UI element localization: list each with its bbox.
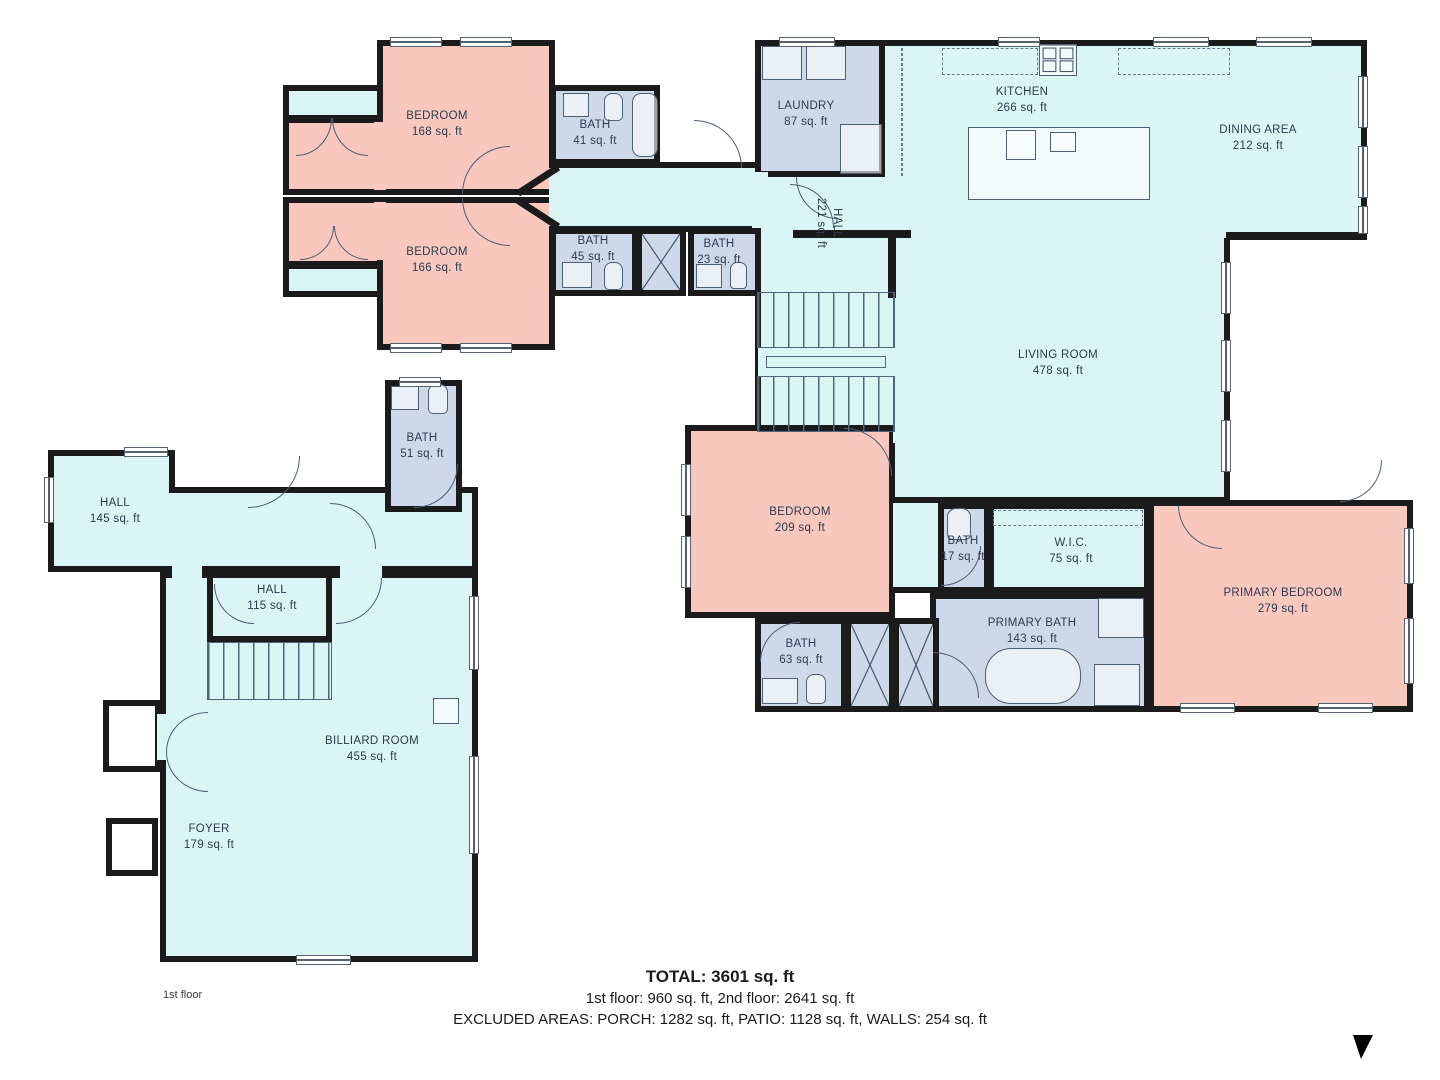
wall-opening (374, 202, 386, 260)
sink (1094, 664, 1140, 706)
window (399, 377, 441, 387)
window (1221, 340, 1231, 392)
label-wic: W.I.C.75 sq. ft (1049, 535, 1093, 567)
window (1358, 206, 1368, 234)
wall (1226, 232, 1367, 240)
window (469, 596, 479, 670)
wall-opening (340, 564, 382, 578)
window (469, 756, 479, 854)
window (1404, 618, 1414, 684)
label-hall-145: HALL145 sq. ft (90, 495, 140, 527)
window (460, 37, 512, 47)
sink (1098, 598, 1144, 638)
window (1153, 37, 1209, 47)
bathtub (632, 93, 658, 157)
room-bedroom-166-bay (283, 263, 383, 297)
label-bath-51: BATH51 sq. ft (400, 430, 444, 462)
summary-floors: 1st floor: 960 sq. ft, 2nd floor: 2641 s… (0, 988, 1440, 1009)
staircase-first-floor (207, 642, 332, 700)
island-cooktop (1050, 132, 1076, 152)
staircase-landing-rail (766, 356, 886, 368)
label-laundry: LAUNDRY87 sq. ft (778, 98, 835, 130)
label-hall-221: HALL221 sq. ft (813, 198, 845, 248)
label-bath-63: BATH63 sq. ft (779, 636, 823, 668)
corner-marker-triangle-icon (1353, 1035, 1373, 1059)
toilet (604, 262, 623, 290)
summary-total: TOTAL: 3601 sq. ft (0, 966, 1440, 988)
window (1256, 37, 1312, 47)
closet-a (845, 618, 895, 712)
label-primary-bath: PRIMARY BATH143 sq. ft (988, 615, 1077, 647)
window (998, 37, 1040, 47)
toilet (428, 384, 448, 414)
dryer (806, 46, 846, 80)
wall (888, 238, 896, 298)
closet-shelving (993, 510, 1143, 526)
wall-opening (374, 122, 386, 190)
window (1221, 420, 1231, 472)
primary-bathtub (985, 648, 1081, 704)
window (390, 37, 442, 47)
window (1358, 146, 1368, 198)
window (124, 447, 168, 457)
sink (563, 93, 589, 117)
window (460, 343, 512, 353)
wall-opening (893, 431, 1223, 443)
window (681, 536, 691, 588)
summary-excluded: EXCLUDED AREAS: PORCH: 1282 sq. ft, PATI… (0, 1009, 1440, 1030)
counter-edge (901, 48, 903, 176)
wall (793, 230, 911, 238)
label-bath-45: BATH45 sq. ft (571, 233, 615, 265)
label-bedroom-168: BEDROOM168 sq. ft (406, 108, 468, 140)
label-living-room: LIVING ROOM478 sq. ft (1018, 347, 1098, 379)
floor-plan-canvas: BEDROOM168 sq. ft BATH41 sq. ft BEDROOM1… (0, 0, 1440, 1080)
wall-opening (172, 566, 202, 580)
label-bedroom-209: BEDROOM209 sq. ft (769, 504, 831, 536)
window (296, 955, 351, 965)
laundry-sink (840, 124, 882, 174)
room-living-lower (888, 437, 1230, 503)
upper-cabinets (942, 48, 1038, 75)
sink (391, 386, 419, 410)
area-summary: TOTAL: 3601 sq. ft 1st floor: 960 sq. ft… (0, 966, 1440, 1030)
label-bath-23: BATH23 sq. ft (697, 236, 741, 268)
window (1180, 703, 1235, 713)
window (44, 477, 54, 523)
wall-opening (752, 172, 768, 228)
upper-cabinets (1118, 48, 1230, 75)
label-bath-17: BATH17 sq. ft (941, 533, 985, 565)
island-sink (1006, 130, 1036, 160)
room-vestibule (893, 503, 942, 593)
window (1404, 528, 1414, 584)
window (779, 37, 835, 47)
washer (762, 46, 802, 80)
window (1221, 262, 1231, 314)
door-arc (694, 120, 742, 168)
window (681, 464, 691, 516)
shower-stall (636, 228, 686, 296)
door-arc (1340, 460, 1382, 502)
label-billiard-room: BILLIARD ROOM455 sq. ft (325, 733, 419, 765)
toilet (806, 674, 826, 704)
wall-opening (167, 493, 181, 566)
label-hall-115: HALL115 sq. ft (247, 582, 296, 614)
window (1318, 703, 1373, 713)
room-bedroom-168-bay (283, 85, 383, 121)
window (1358, 76, 1368, 128)
porch-alcove-door (103, 700, 161, 772)
wall-nook (433, 698, 459, 724)
porch-alcove-window (106, 818, 158, 876)
window (390, 343, 442, 353)
sink (562, 262, 592, 288)
staircase-upper-flight (757, 292, 895, 348)
label-bath-41: BATH41 sq. ft (573, 117, 617, 149)
label-foyer: FOYER179 sq. ft (184, 821, 234, 853)
stove-icon (1039, 44, 1077, 76)
sink (762, 678, 798, 704)
label-kitchen: KITCHEN266 sq. ft (996, 84, 1049, 116)
staircase-lower-flight (757, 376, 895, 432)
label-dining-area: DINING AREA212 sq. ft (1219, 122, 1296, 154)
room-upper-corridor (549, 162, 768, 232)
floor-label: 1st floor (163, 989, 202, 1001)
label-bedroom-166: BEDROOM166 sq. ft (406, 244, 468, 276)
label-primary-bedroom: PRIMARY BEDROOM279 sq. ft (1223, 585, 1342, 617)
